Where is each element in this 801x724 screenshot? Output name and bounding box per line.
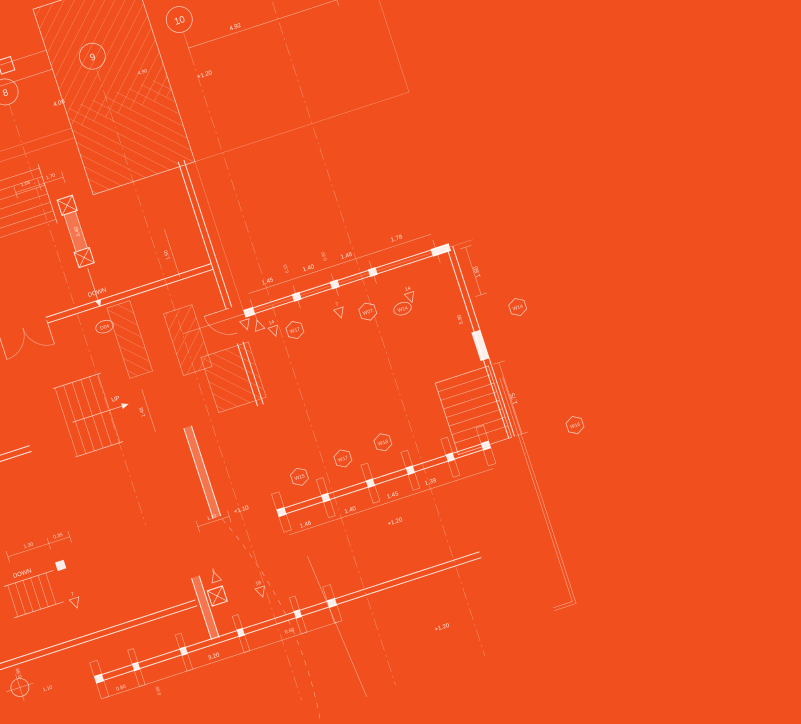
floor-plan-svg: 8 9 10 4.92 +1.20 4.06 4.90 (0, 0, 801, 724)
blueprint-canvas: 8 9 10 4.92 +1.20 4.06 4.90 (0, 0, 801, 724)
